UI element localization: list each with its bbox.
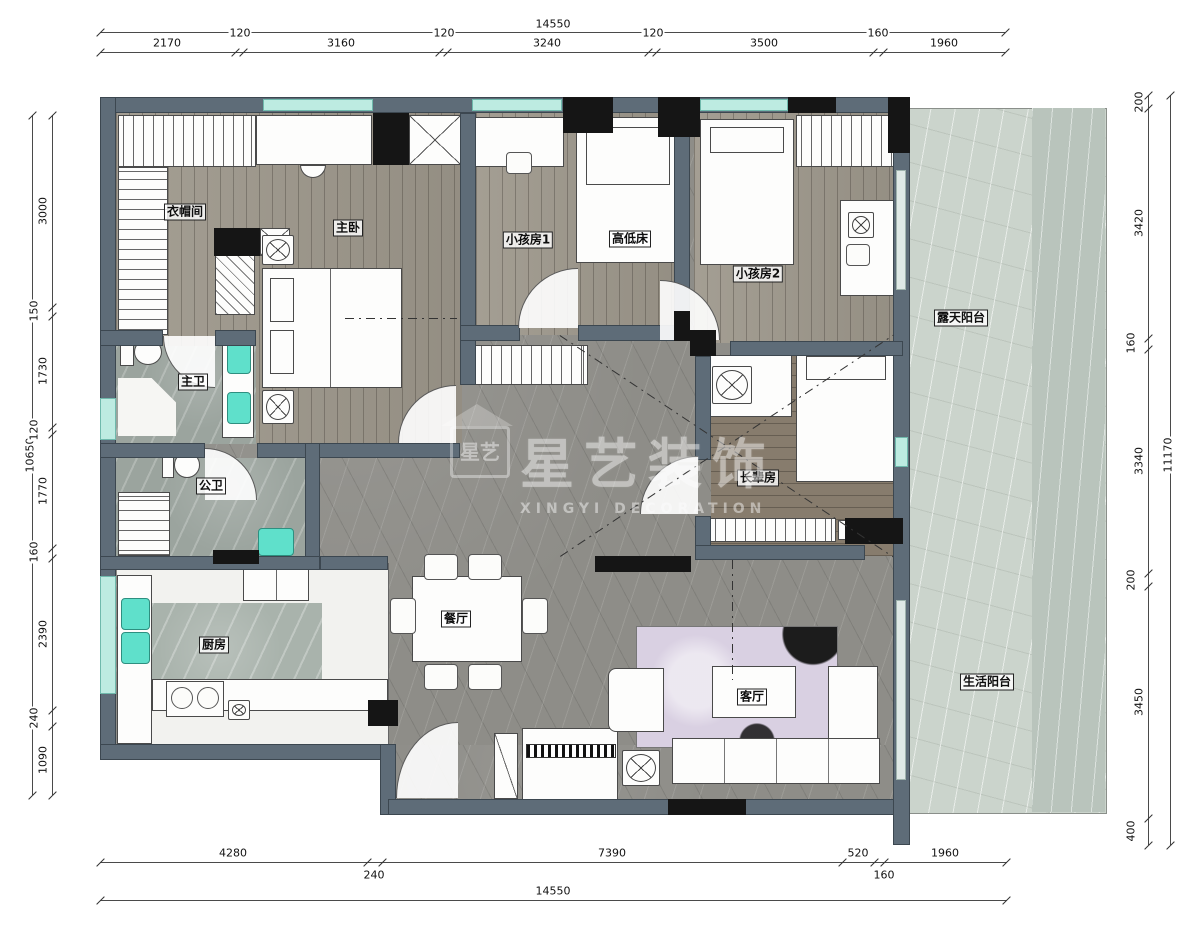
fridge-door-line — [276, 566, 277, 600]
dim-right-seg: 3450 — [1133, 687, 1146, 717]
dining-chair — [390, 598, 416, 634]
elder-nightstand — [712, 366, 752, 404]
dim-right-total: 11170 — [1162, 437, 1175, 474]
balcony-glass-door-living — [896, 600, 906, 780]
dim-right-seg: 400 — [1125, 820, 1138, 843]
label-dining-room: 餐厅 — [441, 611, 471, 628]
dining-chair — [468, 664, 502, 690]
shoe-cabinet — [494, 733, 518, 799]
dim-bottom-seg: 4280 — [218, 847, 248, 860]
wall-suite-bottom-b — [257, 443, 460, 458]
dining-chair — [468, 554, 502, 580]
kitchen-sink-1 — [121, 598, 150, 630]
nightstand-master-2 — [262, 390, 294, 424]
elder-wardrobe — [700, 518, 836, 542]
wall-cloak-bath-a — [100, 330, 163, 346]
watermark-brand: 星艺装饰 — [520, 420, 776, 499]
label-master-bedroom: 主卧 — [333, 220, 363, 237]
dim-line-right-segments — [1148, 95, 1149, 845]
dim-right-seg: 200 — [1125, 569, 1138, 592]
watermark-subtitle: XINGYI DECORATION — [520, 501, 776, 517]
burner-1 — [171, 687, 193, 709]
dim-right-seg: 3340 — [1133, 446, 1146, 476]
master-dresser — [256, 115, 372, 165]
dim-left-seg: 1730 — [37, 356, 50, 386]
label-kids-room-1: 小孩房1 — [503, 232, 553, 249]
piano — [522, 728, 618, 800]
dim-left-seg: 160 — [28, 541, 41, 564]
watermark: 星艺 星艺装饰 XINGYI DECORATION — [520, 420, 776, 517]
window-kids1 — [472, 99, 562, 111]
wall-bottom — [388, 799, 905, 815]
column-master-tv — [373, 113, 409, 165]
dim-left-seg: 150 — [28, 300, 41, 323]
dim-bottom-seg: 1960 — [930, 847, 960, 860]
kids2-chair — [846, 244, 870, 266]
sink-master-2 — [227, 392, 251, 424]
dim-bottom-seg: 7390 — [597, 847, 627, 860]
column-elder-corner — [690, 330, 716, 356]
wall-elder-bottom — [695, 545, 865, 560]
wall-suite-bottom-a — [100, 443, 205, 458]
bed-center-line — [330, 269, 331, 387]
dim-top-total: 14550 — [535, 18, 572, 31]
cloak-wardrobe-left — [118, 167, 168, 335]
dining-chair — [522, 598, 548, 634]
column-top-right — [888, 97, 910, 153]
dim-left-total: 10650 — [24, 437, 37, 474]
column-top-2 — [658, 97, 700, 137]
pillow — [270, 330, 294, 374]
wall-guestbath-right — [305, 443, 320, 568]
piano-keys — [526, 744, 616, 758]
column-cloak — [214, 228, 260, 256]
dim-bottom-total: 14550 — [535, 885, 572, 898]
label-cloakroom: 衣帽间 — [164, 204, 206, 221]
dim-top-seg: 2170 — [152, 37, 182, 50]
elder-pillows — [806, 356, 886, 380]
wall-cloak-bath-b — [215, 330, 256, 346]
watermark-logo: 星艺 — [450, 426, 510, 478]
kitchen-drain — [228, 700, 250, 720]
side-table — [622, 750, 660, 786]
dim-bottom-seg: 240 — [363, 869, 386, 882]
dining-chair — [424, 664, 458, 690]
column-kitchen-top — [213, 550, 259, 564]
floor-plan-canvas: 14550 2170 120 3160 120 3240 120 3500 16… — [0, 0, 1200, 925]
pillow — [270, 278, 294, 322]
dash-line-4 — [732, 560, 733, 680]
wall-bottom-left — [100, 744, 388, 760]
label-kitchen: 厨房 — [199, 637, 229, 654]
nightstand-master-1 — [262, 235, 294, 265]
kitchen-sink-2 — [121, 632, 150, 664]
armchair — [608, 668, 664, 732]
kids2-pillow — [710, 127, 784, 153]
column-entry — [368, 700, 398, 726]
sofa — [672, 738, 880, 784]
column-hall-strip — [595, 556, 691, 572]
label-life-balcony: 生活阳台 — [960, 674, 1014, 691]
sink-guest — [258, 528, 294, 556]
tv-wall-black — [668, 799, 746, 815]
dim-left-seg: 2390 — [37, 619, 50, 649]
dim-top-seg: 120 — [642, 27, 665, 40]
kids2-wardrobe — [796, 115, 902, 167]
label-guest-bath: 公卫 — [196, 478, 226, 495]
shower-guest — [118, 492, 170, 556]
column-top-1 — [563, 97, 613, 133]
dim-right-seg: 160 — [1125, 332, 1138, 355]
wall-kids2-elder — [730, 341, 903, 356]
dim-right-seg: 3420 — [1133, 208, 1146, 238]
dim-line-left-segments — [52, 115, 53, 795]
dim-left-seg: 1090 — [37, 745, 50, 775]
column-kids-divider — [674, 311, 690, 341]
label-bunk-bed: 高低床 — [609, 231, 651, 248]
balcony-glass-door-top — [896, 170, 906, 290]
dim-top-seg: 1960 — [929, 37, 959, 50]
label-kids-room-2: 小孩房2 — [733, 266, 783, 283]
kids2-lamp — [848, 212, 874, 238]
dim-line-bottom-segments — [100, 862, 1007, 863]
dim-top-seg: 120 — [433, 27, 456, 40]
dim-left-seg: 1770 — [37, 476, 50, 506]
dim-bottom-seg: 520 — [847, 847, 870, 860]
dining-chair — [424, 554, 458, 580]
dash-line-3 — [345, 318, 457, 319]
dim-left-seg: 120 — [28, 419, 41, 442]
dim-bottom-seg: 160 — [873, 869, 896, 882]
window-kids2 — [700, 99, 788, 111]
dim-top-seg: 160 — [867, 27, 890, 40]
dim-top-seg: 3240 — [532, 37, 562, 50]
label-open-balcony: 露天阳台 — [934, 310, 988, 327]
balcony-floor-band — [1032, 108, 1105, 812]
column-top-3 — [788, 97, 836, 113]
wall-master-kids1 — [460, 113, 476, 385]
dim-top-seg: 3500 — [749, 37, 779, 50]
sink-master-1 — [227, 342, 251, 374]
wall-kitchen-top — [100, 556, 320, 570]
label-master-bath: 主卫 — [178, 374, 208, 391]
dim-left-seg: 3000 — [37, 196, 50, 226]
window-master — [263, 99, 373, 111]
master-cabinet-x — [409, 115, 461, 165]
kitchen-floor — [152, 603, 322, 679]
chaise — [828, 666, 878, 742]
wall-kitchen-top-b — [320, 556, 388, 570]
dim-left-seg: 240 — [28, 707, 41, 730]
dim-top-seg: 120 — [229, 27, 252, 40]
cloak-wardrobe-top — [118, 115, 256, 167]
window-kitchen — [100, 576, 116, 694]
dim-top-seg: 3160 — [326, 37, 356, 50]
label-living-room: 客厅 — [737, 689, 767, 706]
corridor-cabinet — [466, 345, 588, 385]
window-master-bath — [100, 398, 116, 440]
burner-2 — [197, 687, 219, 709]
window-elder-balcony — [895, 437, 908, 467]
wall-kids1-bottom-a — [460, 325, 520, 341]
watermark-logo-roof — [441, 404, 513, 426]
kids1-chair — [506, 152, 532, 174]
cloak-cabinet — [215, 255, 255, 315]
dim-line-bottom-total — [100, 900, 1007, 901]
dim-right-seg: 200 — [1133, 91, 1146, 114]
